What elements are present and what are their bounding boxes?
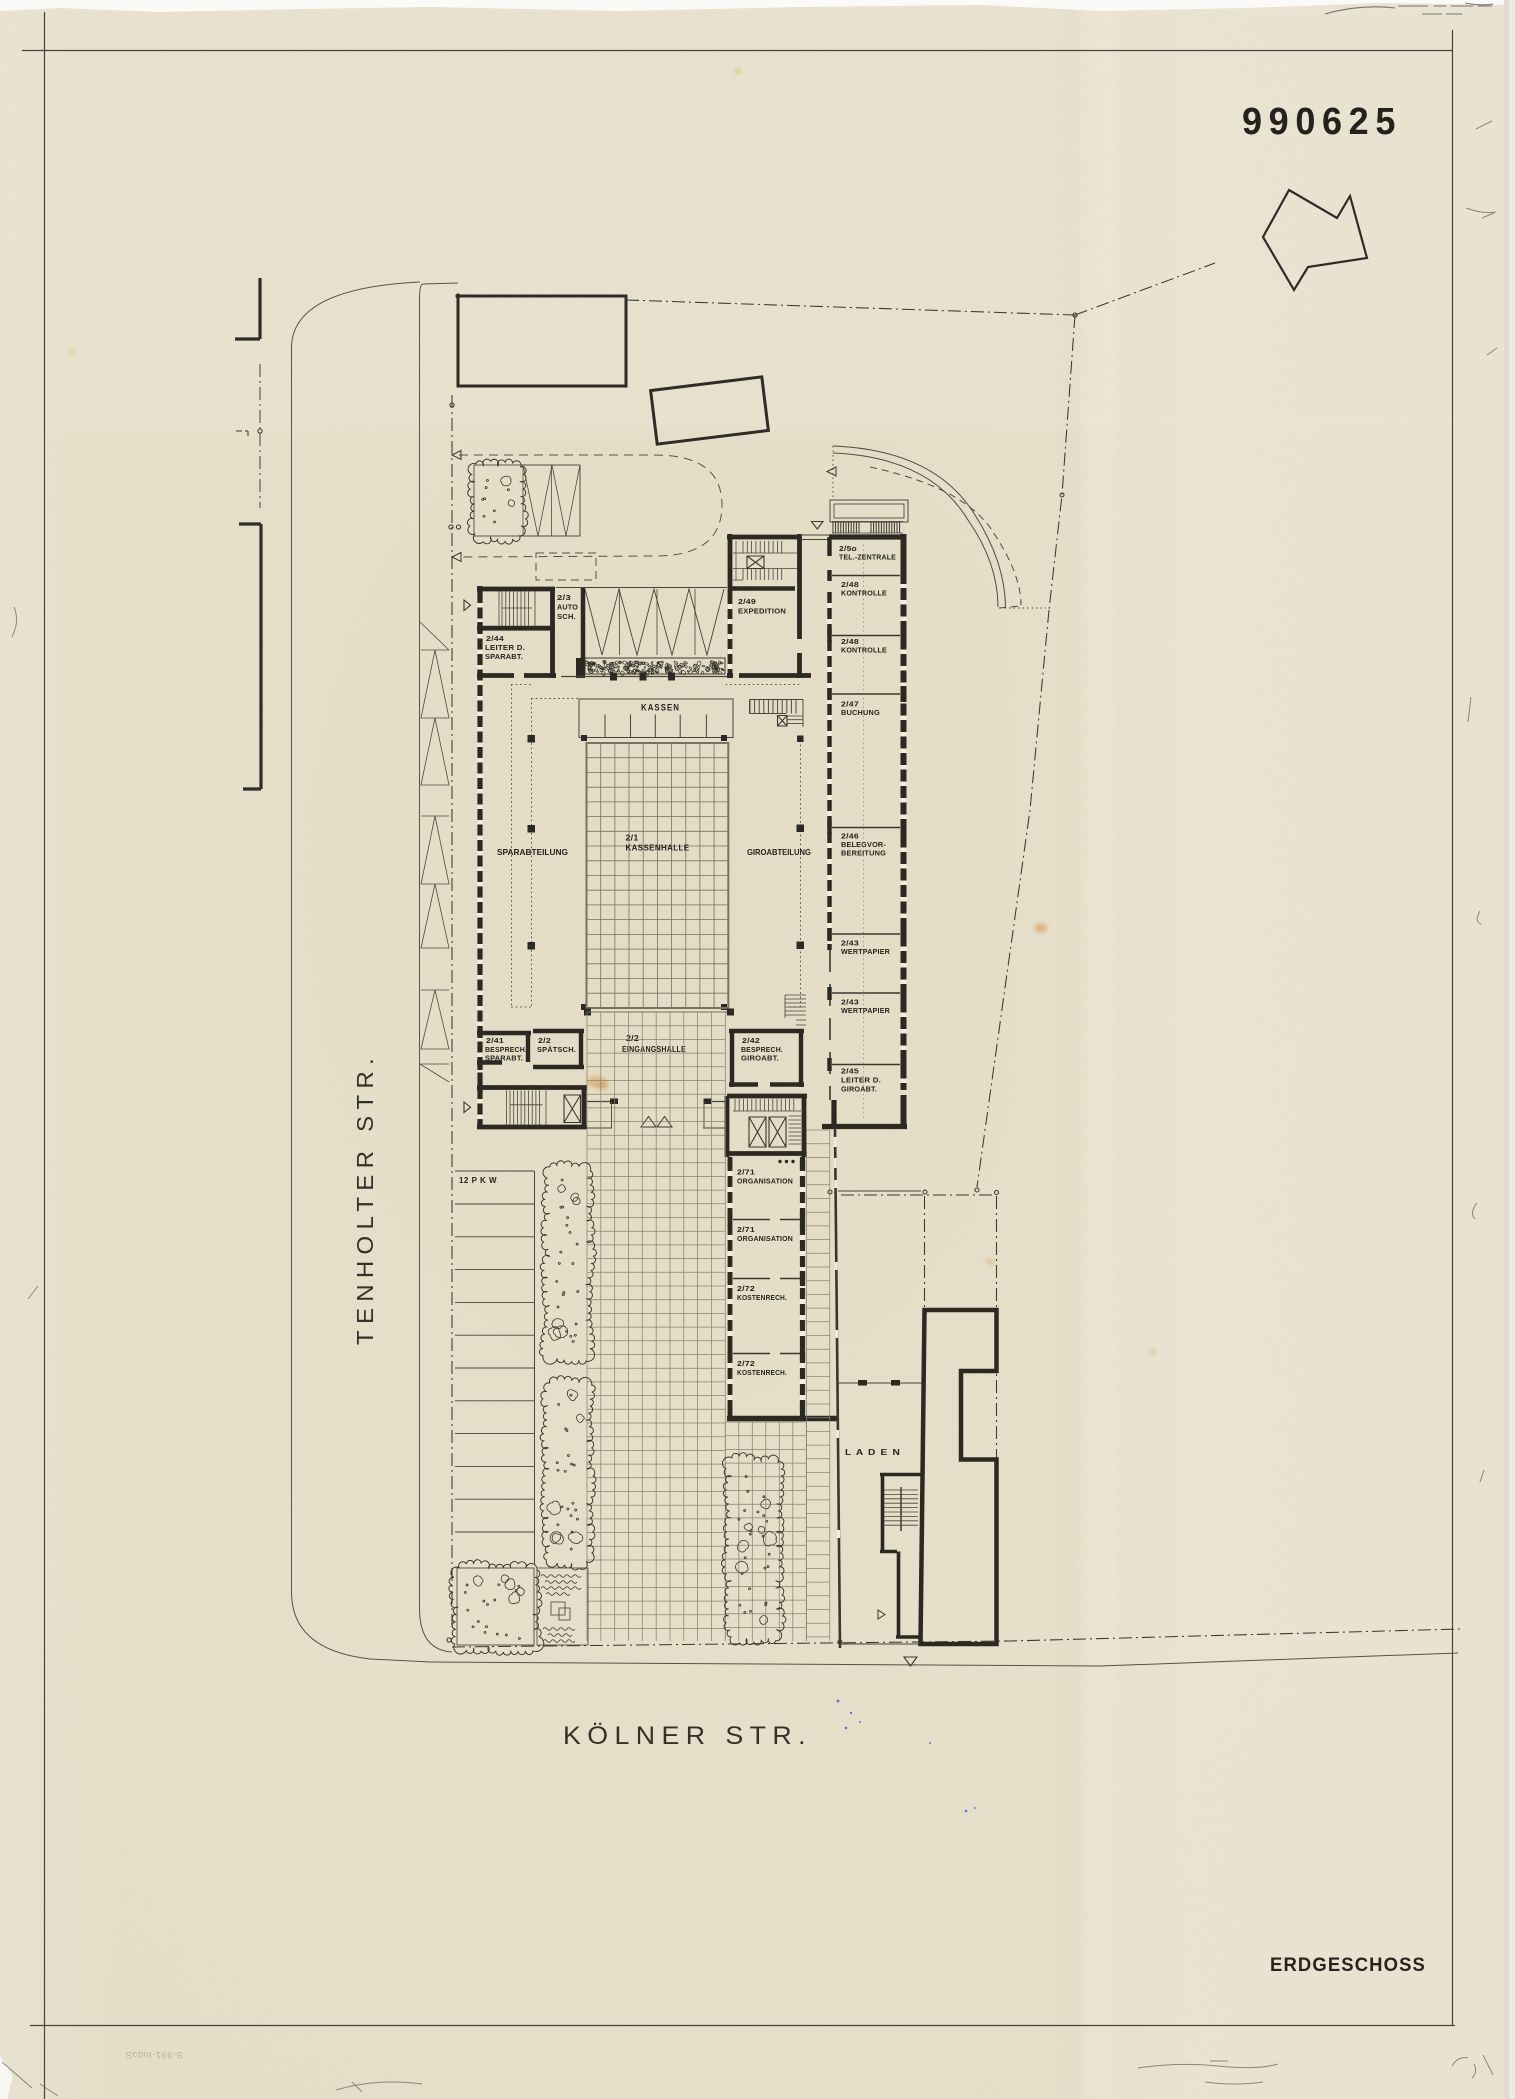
svg-text:EINGANGSHALLE: EINGANGSHALLE [622,1044,686,1054]
svg-text:LEITER D.: LEITER D. [485,643,525,652]
svg-text:KASSEN: KASSEN [641,703,680,713]
svg-text:GIROABT.: GIROABT. [841,1085,877,1094]
svg-text:LEITER D.: LEITER D. [841,1076,881,1085]
svg-text:GIROABT.: GIROABT. [741,1054,779,1063]
svg-text:2/72: 2/72 [737,1359,755,1368]
svg-text:TENHOLTER STR.: TENHOLTER STR. [352,1052,378,1345]
svg-text:BEREITUNG: BEREITUNG [841,849,886,858]
svg-text:KONTROLLE: KONTROLLE [841,589,887,598]
svg-text:KOSTENRECH.: KOSTENRECH. [737,1368,787,1377]
svg-text:2/2: 2/2 [538,1036,551,1045]
svg-text:WERTPAPIER: WERTPAPIER [841,947,890,956]
svg-text:990625: 990625 [1242,101,1402,143]
svg-text:2/2: 2/2 [626,1033,639,1043]
svg-text:2/41: 2/41 [486,1036,504,1045]
svg-text:GIROABTEILUNG: GIROABTEILUNG [747,847,811,857]
svg-text:SCH.: SCH. [557,612,576,621]
svg-text:2/71: 2/71 [737,1225,755,1234]
svg-text:AUTO: AUTO [557,603,578,612]
svg-text:2/71: 2/71 [737,1168,755,1177]
svg-text:SPARABTEILUNG: SPARABTEILUNG [497,847,568,857]
svg-text:KONTROLLE: KONTROLLE [841,646,887,655]
svg-text:SPARABT.: SPARABT. [485,1054,523,1063]
svg-text:KASSENHALLE: KASSENHALLE [626,843,690,853]
svg-text:2/49: 2/49 [738,597,756,606]
svg-text:KOSTENRECH.: KOSTENRECH. [737,1293,787,1302]
svg-text:S-991-ludɔS: S-991-ludɔS [125,2049,183,2060]
svg-text:2/1: 2/1 [626,833,639,843]
svg-text:ORGANISATION: ORGANISATION [737,1234,793,1243]
svg-text:2/45: 2/45 [841,1067,859,1076]
svg-text:2/44: 2/44 [486,634,505,643]
svg-text:KÖLNER STR.: KÖLNER STR. [563,1722,812,1750]
svg-text:2/42: 2/42 [742,1036,760,1045]
svg-text:EXPEDITION: EXPEDITION [738,607,786,616]
svg-text:ORGANISATION: ORGANISATION [737,1177,793,1186]
svg-text:2/3: 2/3 [557,593,571,602]
svg-text:12 P K W: 12 P K W [459,1176,497,1185]
svg-text:TEL.-ZENTRALE: TEL.-ZENTRALE [839,553,896,562]
svg-text:2/72: 2/72 [737,1284,755,1293]
svg-text:SPÄTSCH.: SPÄTSCH. [537,1045,576,1054]
svg-text:SPARABT.: SPARABT. [485,652,523,661]
svg-text:BUCHUNG: BUCHUNG [841,708,880,717]
svg-text:ERDGESCHOSS: ERDGESCHOSS [1270,1954,1426,1976]
svg-text:L A D E N: L A D E N [845,1447,901,1457]
svg-text:WERTPAPIER: WERTPAPIER [841,1006,890,1015]
